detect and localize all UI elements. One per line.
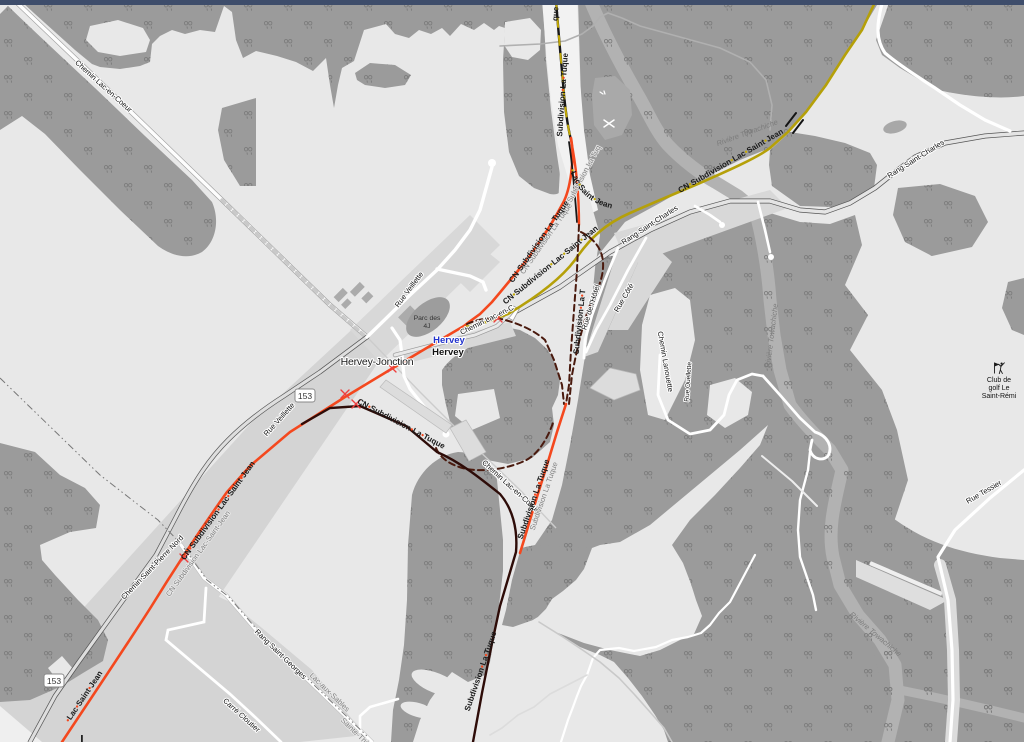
svg-text:Hervey: Hervey [433,335,465,346]
svg-text:153: 153 [298,391,312,401]
svg-text:4J: 4J [423,323,430,330]
svg-text:que: que [551,6,561,21]
svg-text:Saint-Rémi: Saint-Rémi [982,393,1017,400]
svg-text:153: 153 [47,676,61,686]
svg-text:Hervey-Jonction: Hervey-Jonction [341,356,414,368]
svg-text:Hervey: Hervey [432,347,464,358]
svg-text:golf Le: golf Le [988,385,1009,392]
svg-text:Parc des: Parc des [414,315,441,322]
svg-text:Club de: Club de [987,377,1011,384]
